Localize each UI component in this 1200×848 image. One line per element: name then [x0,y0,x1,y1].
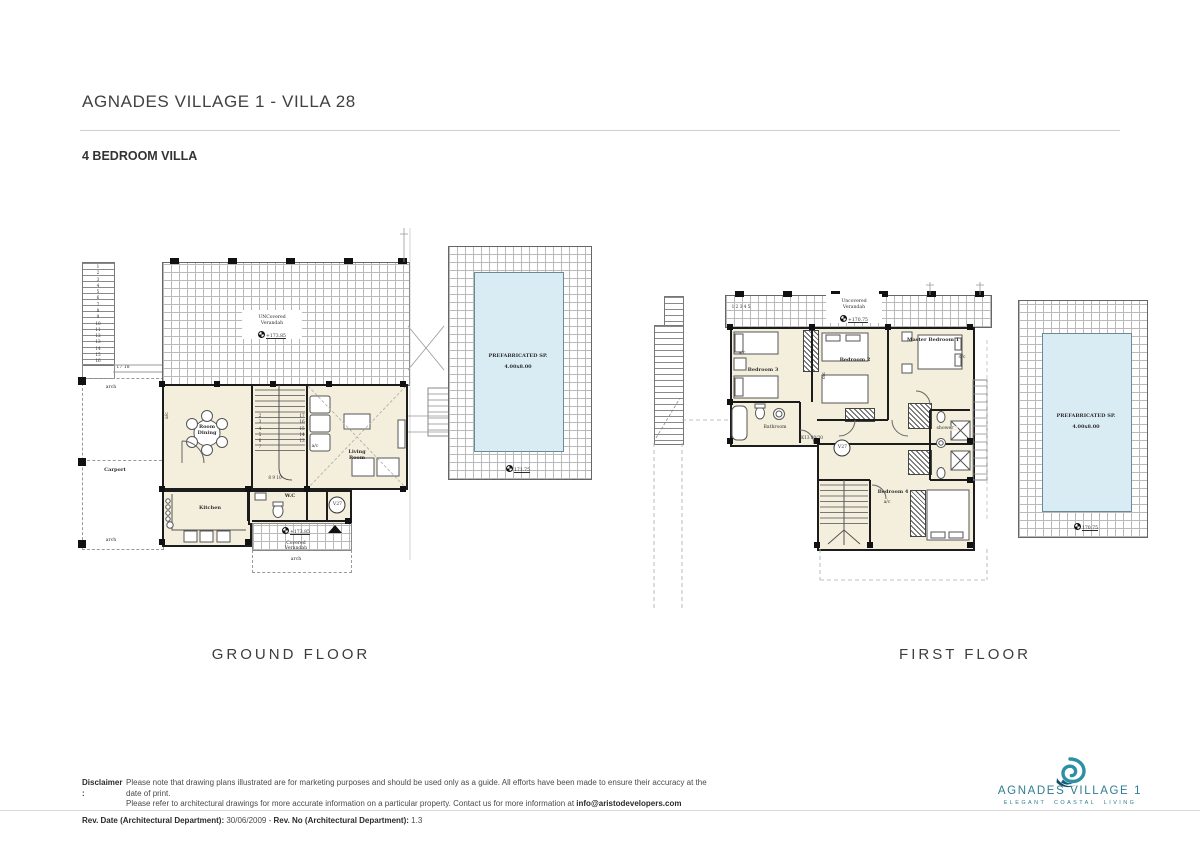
wall-column [344,258,353,264]
bathroom-label: Bathroom [753,425,797,430]
pool-level-value-first: 170.75 [1082,526,1098,531]
pool-size-first: 4.00x8.00 [1072,424,1099,430]
wardrobe-hatch [908,403,932,429]
carport-label: Carport [92,468,138,474]
house-body-first-lower [817,443,975,551]
arch-label-top: arch [96,385,126,390]
pool-level: 171.75 [492,460,544,474]
wardrobe-hatch [803,330,819,372]
wall-column [345,518,351,524]
verandah-projection [252,550,352,573]
ac-label-living: a/c [308,444,322,449]
wall-column [809,324,815,330]
brochure-page: AGNADES VILLAGE 1 - VILLA 28 4 BEDROOM V… [0,0,1200,848]
disclaimer-text: Please note that drawing plans illustrat… [126,778,722,810]
oc-label-bed2: o/c [822,368,827,384]
pool-name-first: PREFABRICATED SP. [1056,413,1115,419]
stair-landing [82,364,115,379]
arch-label-bottom: arch [96,538,126,543]
rev-date-value: 30/06/2009 - [224,816,273,825]
wall-column [967,477,973,483]
kitchen-block [162,490,252,547]
wc-label: W.C [278,494,302,500]
wall-column [159,539,165,545]
canopy-arrow [328,525,342,533]
wall-column [245,486,251,492]
stair-num-left: 2 3 4 5 6 7 [256,413,264,451]
disclaimer-email: info@aristodevelopers.com [576,799,681,808]
wall-column [814,438,820,444]
wall-column [967,324,973,330]
wall-column [885,324,891,330]
page-subtitle: 4 BEDROOM VILLA [82,149,197,163]
carport-gridline [82,460,162,461]
pool-label: PREFABRICATED SP. 4.00x8.00 [474,348,562,371]
stair-num-bottom: 8 9 10 [258,475,292,481]
level-marker-icon [506,465,513,472]
level-marker-icon [1074,523,1081,530]
exterior-stair-first [654,325,684,445]
stair-turn-numbers: 17 18 [112,365,134,370]
wall-column [286,258,295,264]
living-room-label: Living Room [334,450,380,462]
revision-line: Rev. Date (Architectural Department): 30… [82,816,422,825]
first-floor-caption: FIRST FLOOR [855,646,1075,663]
rev-no-label: Rev. No (Architectural Department): [273,816,408,825]
wall-column [727,399,733,405]
wall-column [170,258,179,264]
ac-label-bed3: a/c [735,351,749,356]
wall-column [400,381,406,387]
wall-column [967,438,973,444]
pool-level-value: 171.75 [514,468,530,473]
logo-tagline: ELEGANT COASTAL LIVING [992,800,1148,806]
wall-column [867,542,873,548]
wall-column [727,324,733,330]
master-bedroom-label: Master Bedroom 1 [895,338,971,344]
pool-label-first: PREFABRICATED SP. 4.00x8.00 [1042,408,1130,431]
stair-step-numbers: 1 2 3 4 5 6 7 8 9 10 11 12 13 14 15 16 [93,264,103,365]
first-floor-plan: Uncovered Verandah +170.75 1 2 3 4 5 [640,280,1165,630]
wall-column [814,542,820,548]
wardrobe-hatch [910,490,926,537]
rev-date-label: Rev. Date (Architectural Department): [82,816,224,825]
uncovered-verandah-label: UNCovered Verandah +173.85 [242,310,302,339]
pool-size: 4.00x8.00 [504,364,531,370]
wall-column [214,381,220,387]
exterior-stair-upper [664,296,684,326]
wall-column [727,438,733,444]
covered-verandah-level: +173.85 [290,530,310,535]
verandah-first-level: +170.75 [848,318,868,323]
k13-label: K13 80/20 [795,435,829,441]
dining-room-label: Room Dining [182,425,232,437]
wall-column [159,381,165,387]
uncovered-verandah-level: +173.85 [266,334,286,339]
wall-column [78,540,86,548]
logo-name: AGNADES VILLAGE 1 [992,785,1148,797]
wardrobe-hatch [908,450,932,475]
wall-column [245,539,251,545]
disclaimer: Disclaimer : Please note that drawing pl… [82,778,722,810]
disclaimer-line2: Please refer to architectural drawings f… [126,799,576,808]
ac-label-dining: a/c [165,406,170,426]
bedroom4-label: Bedroom 4 [868,490,918,496]
page-title: AGNADES VILLAGE 1 - VILLA 28 [82,92,356,112]
v27-label: V27 [330,502,345,507]
wall-column [398,258,407,264]
wall-column [783,291,792,297]
carport-area [82,378,164,550]
rev-no-value: 1.3 [409,816,422,825]
wardrobe-hatch [845,408,875,422]
uncovered-verandah-text: UNCovered Verandah [258,315,285,325]
wall-column [159,486,165,492]
oc-label-master: o/c [955,355,969,360]
level-marker-icon [282,527,289,534]
header-divider [80,130,1120,131]
wall-column [400,486,406,492]
footer-divider [0,810,1200,811]
verandah-first-label: Uncovered Verandah +170.75 [826,294,882,323]
wall-column [326,381,332,387]
wall-column [304,486,310,492]
developer-logo: AGNADES VILLAGE 1 ELEGANT COASTAL LIVING [992,757,1148,806]
ground-floor-plan: 1 2 3 4 5 6 7 8 9 10 11 12 13 14 15 16 1… [62,228,602,580]
bedroom2-label: Bedroom 2 [830,358,880,364]
wall-column [967,542,973,548]
stair-num-right: 17 16 15 14 13 [298,413,306,444]
level-marker-icon [258,331,265,338]
wall-column [78,458,86,466]
wall-column [927,291,936,297]
entry-steps-numbers: 1 2 3 4 5 [726,304,756,310]
shower-label: shower [932,426,958,431]
bedroom3-label: Bedroom 3 [738,368,788,374]
wall-column [270,381,276,387]
disclaimer-label: Disclaimer : [82,778,126,810]
wall-column [975,291,984,297]
pool-name: PREFABRICATED SP. [488,353,547,359]
pool-level-first: 170.75 [1060,518,1112,532]
ground-floor-caption: GROUND FLOOR [181,646,401,663]
level-marker-icon [840,315,847,322]
wall-column [735,291,744,297]
ac-label-bed4: a/c [880,500,894,505]
kitchen-label: Kitchen [187,506,233,512]
v27-label-first: V27 [835,445,850,450]
verandah-first-text: Uncovered Verandah [841,299,866,309]
wall-column [78,377,86,385]
disclaimer-line1: Please note that drawing plans illustrat… [126,778,707,798]
wall-column [228,258,237,264]
